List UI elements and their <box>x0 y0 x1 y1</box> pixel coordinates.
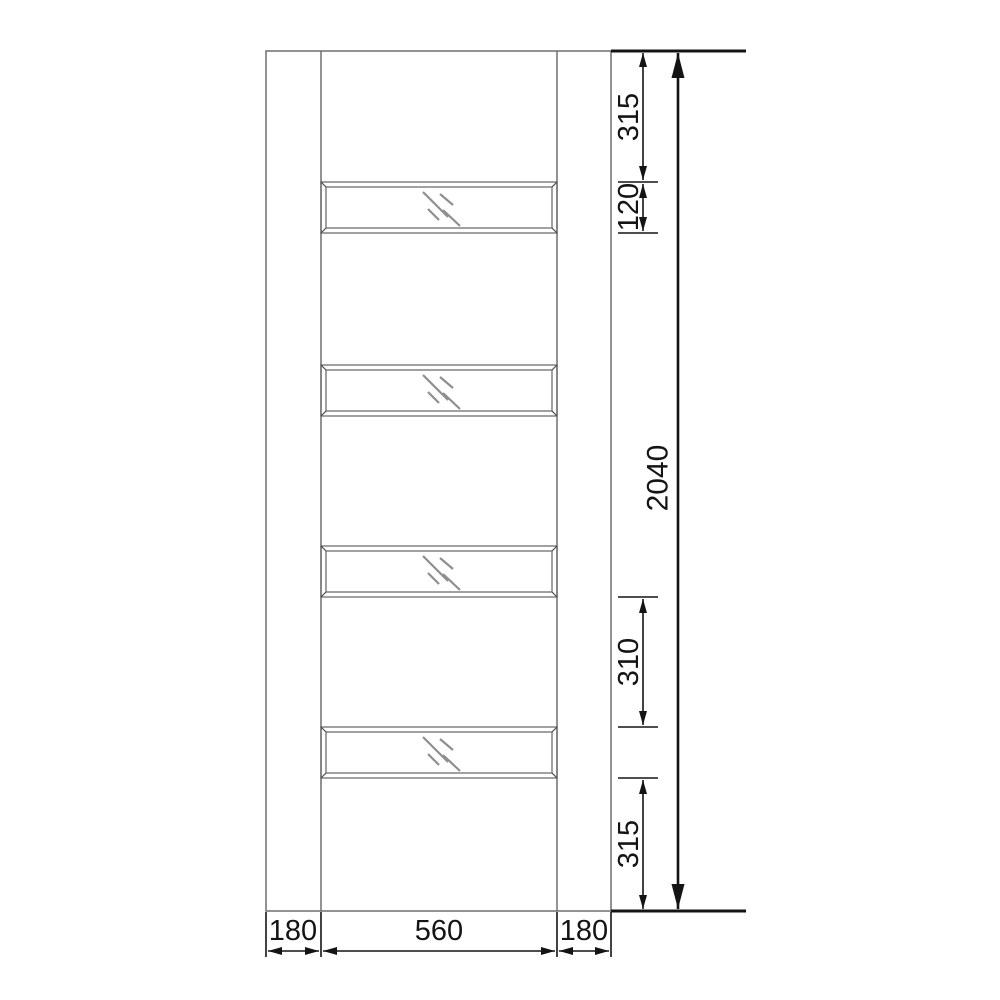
dim-label-top-rail: 315 <box>613 93 645 141</box>
door-outline <box>266 51 611 911</box>
glass-hatch-icon <box>423 375 460 409</box>
glass-hatch-icon <box>423 192 460 226</box>
door-technical-drawing: 315 120 310 315 2040 180 560 <box>0 0 1000 1000</box>
glass-hatch-icon <box>423 556 460 590</box>
dim-bottom-rail: 315 <box>613 780 645 909</box>
dim-label-glazing-width: 560 <box>415 915 463 947</box>
glass-panel-1 <box>321 182 557 233</box>
glass-panel-3 <box>321 546 557 597</box>
dim-top-rail: 315 <box>613 53 645 180</box>
drawing-canvas: 315 120 310 315 2040 180 560 <box>0 0 1000 1000</box>
dim-label-bottom-rail: 315 <box>613 820 645 868</box>
dim-right-stile: 180 <box>559 915 609 951</box>
glass-panel-4 <box>321 727 557 778</box>
dim-label-pane-height: 120 <box>613 183 645 231</box>
bottom-dimension-row: 180 560 180 <box>266 912 611 957</box>
door-leaf <box>266 51 611 911</box>
dim-label-overall-height: 2040 <box>642 445 675 512</box>
dim-label-mid-rail: 310 <box>613 638 645 686</box>
dim-mid-rail: 310 <box>613 599 645 725</box>
glass-hatch-icon <box>423 737 460 771</box>
dim-label-right-stile: 180 <box>560 915 608 947</box>
dim-label-left-stile: 180 <box>269 915 317 947</box>
dim-glazing-width: 560 <box>323 915 555 951</box>
dim-pane-height: 120 <box>613 183 645 231</box>
dim-left-stile: 180 <box>268 915 319 951</box>
glass-panel-2 <box>321 365 557 416</box>
